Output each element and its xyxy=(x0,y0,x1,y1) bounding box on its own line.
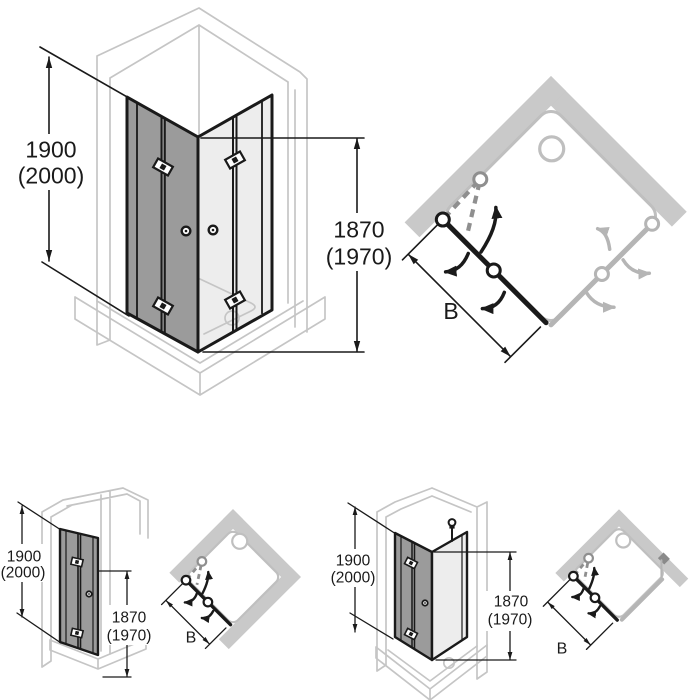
height-total-alt-label: (2000) xyxy=(1,565,46,582)
width-label: B xyxy=(557,641,568,658)
swing-arrow-outward xyxy=(572,587,585,600)
height-glass-alt-label: (1970) xyxy=(488,612,533,629)
width-label: B xyxy=(443,298,458,324)
height-glass-label: 1870 xyxy=(112,610,147,627)
corner-entry-plan-view: B xyxy=(385,76,699,390)
swing-arrow-outward xyxy=(202,609,214,621)
height-total-label: 1900 xyxy=(7,549,42,566)
shower-enclosure-diagram: 1900 (2000) 1870 (1970) xyxy=(0,0,700,700)
recess-3d-view: 1900 (2000) 1870 (1970) xyxy=(0,488,153,677)
height-total-alt-label: (2000) xyxy=(18,162,84,188)
door-knob xyxy=(209,226,218,235)
door-knob xyxy=(86,591,91,596)
width-label: B xyxy=(186,630,197,647)
hinge-bracket xyxy=(71,628,83,637)
door-knob xyxy=(422,600,427,605)
swing-arrow-outward xyxy=(185,592,198,605)
dimension-height-glass: 1870 (1970) xyxy=(98,571,153,677)
corner-side-panel-3d-view: 1900 (2000) 1870 (1970) xyxy=(330,488,535,700)
swing-arrow-outward xyxy=(589,604,601,616)
height-total-alt-label: (2000) xyxy=(331,570,376,587)
corner-entry-3d-view: 1900 (2000) 1870 (1970) xyxy=(17,8,395,395)
hinge-bracket xyxy=(71,557,83,566)
door-knob xyxy=(182,227,191,236)
height-glass-alt-label: (1970) xyxy=(107,628,152,645)
swing-arrow-outward xyxy=(446,251,471,276)
corner-side-panel-plan-view: B xyxy=(533,509,689,665)
glass-panel-right-fill xyxy=(198,95,272,352)
height-total-label: 1900 xyxy=(336,553,371,570)
swing-arrow-gray-outward xyxy=(622,253,649,280)
recess-plan-view: B xyxy=(150,509,301,660)
height-total-label: 1900 xyxy=(25,136,76,162)
swing-arrow-gray-outward xyxy=(586,286,614,314)
height-glass-alt-label: (1970) xyxy=(326,243,392,269)
technical-diagram-page: 1900 (2000) 1870 (1970) xyxy=(0,0,700,700)
swing-arrow-outward xyxy=(482,290,506,314)
stabilizer-bracket xyxy=(449,519,456,541)
height-glass-label: 1870 xyxy=(494,594,529,611)
height-glass-label: 1870 xyxy=(333,216,384,242)
dimension-height-total: 1900 (2000) xyxy=(17,47,129,316)
